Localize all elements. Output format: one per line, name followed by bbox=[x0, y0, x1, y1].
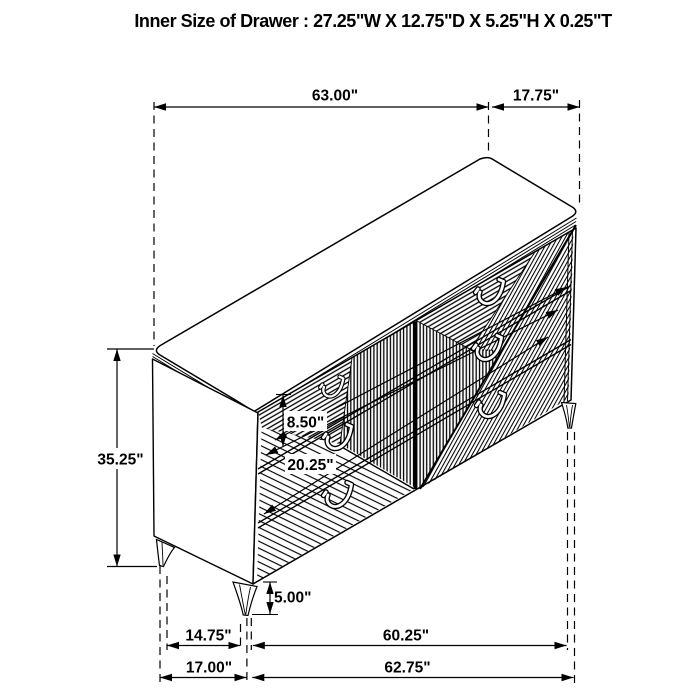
svg-text:17.00": 17.00" bbox=[186, 660, 232, 677]
svg-text:5.00": 5.00" bbox=[274, 590, 312, 607]
svg-text:62.75": 62.75" bbox=[384, 660, 430, 677]
svg-text:17.75": 17.75" bbox=[513, 88, 559, 105]
svg-text:14.75": 14.75" bbox=[185, 628, 231, 645]
svg-text:8.50": 8.50" bbox=[287, 415, 325, 432]
svg-text:35.25": 35.25" bbox=[97, 452, 143, 469]
svg-text:63.00": 63.00" bbox=[312, 88, 358, 105]
svg-text:60.25": 60.25" bbox=[383, 628, 429, 645]
svg-text:20.25": 20.25" bbox=[287, 457, 333, 474]
svg-text:Inner Size of Drawer : 27.25"W: Inner Size of Drawer : 27.25"W X 12.75"D… bbox=[134, 11, 612, 31]
